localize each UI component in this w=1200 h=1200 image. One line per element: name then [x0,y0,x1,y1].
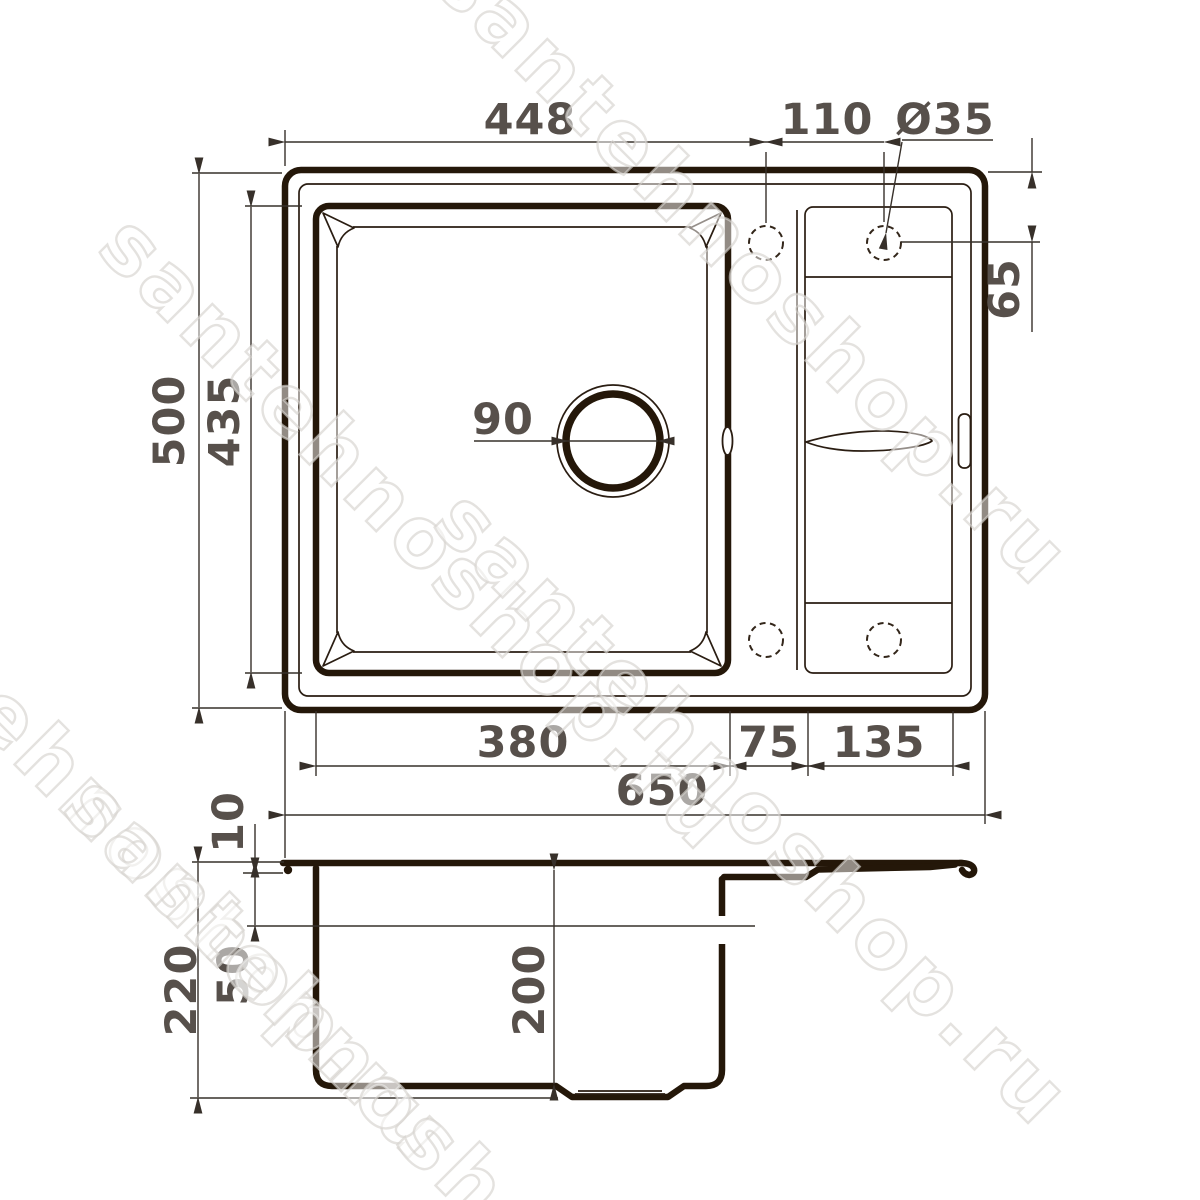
dim-label-overall-depth: 500 [145,375,195,468]
watermark-text: santehnoshop.ru [46,757,720,1200]
sink-technical-drawing: 448 110 Ø35 65 500 435 90 380 75 135 650… [0,0,1200,1200]
watermark-text: santehnoshop.ru [416,472,1090,1146]
dim-label-bowl-inner-height: 200 [505,944,555,1037]
bowl-corner-bevel [690,632,721,666]
overflow-hole [723,427,733,455]
faucet-hole [867,226,901,260]
dim-label-hole-diameter: Ø35 [895,95,994,145]
overflow-gap [717,916,728,944]
bowl-corner-bevel [323,213,354,247]
faucet-hole [749,623,783,657]
dim-label-rim-height: 10 [204,791,254,853]
dim-label-drain-diameter: 90 [472,395,534,445]
dim-label-hole-offset: 65 [980,258,1030,320]
left-rim-lip [284,866,292,874]
faucet-hole [867,623,901,657]
drain-recess-lines [575,1091,665,1094]
bowl-corner-bevel [323,632,354,666]
dim-label-hole-spacing: 110 [781,95,874,145]
right-rim-hook [960,863,974,875]
dim-label-drainboard-width: 135 [833,718,926,768]
